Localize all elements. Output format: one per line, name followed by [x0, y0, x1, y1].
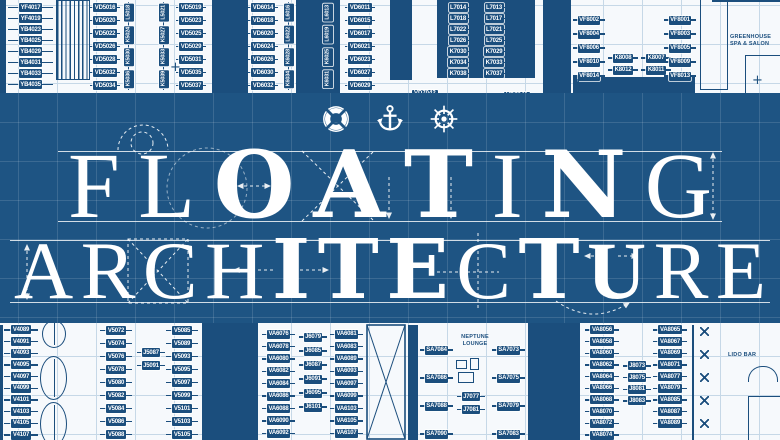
- cabin-label: VF8003: [664, 27, 696, 41]
- title-letter: R: [654, 230, 709, 312]
- cabin-label: J6087: [299, 358, 327, 372]
- cabin-label: K5030: [123, 46, 134, 68]
- cabin-column: VD6011VD6015VD6017VD6021VD6023VD6027VD60…: [345, 1, 375, 92]
- cabin-label: VA6090: [262, 415, 295, 427]
- cabin-label: YB4029: [8, 46, 53, 57]
- cabin-label: VD6020: [248, 27, 278, 40]
- cabin-label: VD5025: [176, 27, 206, 40]
- cabin-label: VF8013: [664, 69, 696, 83]
- room-wall: [712, 0, 780, 2]
- cabin-label: YB4023: [8, 24, 53, 35]
- cabin-label: L6019: [322, 24, 333, 46]
- cabin-column: V5072V5074V5076V5078V5080V5082V5084V5086…: [100, 324, 132, 440]
- cabin-label: K7030: [443, 46, 473, 57]
- room-outline: [700, 0, 728, 90]
- cabin-label: V5089: [166, 337, 198, 350]
- cabin-column: L6013L6019K6025K6031: [322, 2, 333, 90]
- cabin-label: VD5028: [90, 53, 120, 66]
- cabin-column: V5085V5089V5093V5095V5097V5099V5101V5103…: [166, 324, 198, 440]
- cabin-label: V5088: [100, 428, 132, 440]
- cabin-label: YB4025: [8, 35, 53, 46]
- cabin-column: J6079J6085J6087J6091J6095J6101: [299, 330, 327, 414]
- cabin-label: K5039: [158, 68, 169, 90]
- title-letter: L: [138, 140, 195, 233]
- cabin-label: SA7079: [492, 392, 525, 420]
- cabin-label: J5091: [137, 359, 165, 372]
- title-letter: A: [14, 230, 73, 312]
- lido-wall: [692, 325, 694, 440]
- cabin-label: VA8064: [585, 371, 619, 383]
- cabin-column: SA7073SA7075SA7079SA7083: [492, 336, 525, 440]
- registration-mark: +: [573, 76, 584, 86]
- cabin-label: VD5032: [90, 66, 120, 79]
- cabin-label: J8073: [623, 360, 651, 372]
- cabin-label: VA8068: [585, 394, 619, 406]
- title-letter: R: [81, 230, 136, 312]
- cabin-label: L7021: [479, 24, 509, 35]
- cabin-label: V4107: [4, 429, 38, 440]
- cabin-label: VA8079: [653, 382, 687, 394]
- cabin-label: V5085: [166, 324, 198, 337]
- cabin-label: VA8089: [653, 418, 687, 430]
- cabin-label: V5105: [166, 428, 198, 440]
- cabin-label: VD6029: [345, 79, 375, 92]
- title-letter: N: [541, 138, 626, 231]
- cabin-label: VD6015: [345, 14, 375, 27]
- room-outline: [748, 396, 780, 440]
- cabin-label: VD5029: [176, 40, 206, 53]
- cabin-label: VA6105: [330, 415, 363, 427]
- cabin-label: V5097: [166, 376, 198, 389]
- cabin-label: L7014: [443, 2, 473, 13]
- cabin-column: L7014L7018L7022L7026K7030K7034K7038: [443, 2, 473, 79]
- cabin-label: K6031: [322, 68, 333, 90]
- cabin-label: VA6081: [330, 328, 363, 340]
- cabin-column: VA6076VA6078VA6080VA6082VA6084VA6086VA60…: [262, 328, 295, 440]
- cabin-label: YB4031: [8, 57, 53, 68]
- cabin-label: V5103: [166, 415, 198, 428]
- table-icon: [700, 396, 709, 405]
- cabin-label: L7013: [479, 2, 509, 13]
- cabin-column: L6016L6022K6028K6034: [283, 2, 294, 90]
- cabin-label: VA8077: [653, 371, 687, 383]
- cabin-label: J7081: [457, 403, 485, 416]
- cabin-column: J8073J8075J8081J8083: [623, 360, 651, 407]
- title-letter: E: [716, 230, 766, 312]
- cabin-label: V4105: [4, 418, 38, 430]
- cabin-label: V5084: [100, 402, 132, 415]
- room-label-lido: LIDO BAR: [728, 352, 778, 359]
- cabin-label: VD6032: [248, 79, 278, 92]
- cabin-column: YF4017YF4019YB4023YB4025YB4029YB4031YB40…: [8, 2, 53, 90]
- title-letter: T: [518, 229, 579, 311]
- cabin-label: J8083: [623, 395, 651, 407]
- cabin-label: L7026: [443, 35, 473, 46]
- lounge-furniture: [470, 358, 479, 370]
- cabin-label: VA6088: [262, 402, 295, 414]
- cabin-label: V4089: [4, 324, 38, 336]
- room-label-neptune: NEPTUNE LOUNGE: [454, 334, 496, 347]
- cabin-label: VA6092: [262, 427, 295, 439]
- cabin-label: VA6078: [262, 340, 295, 352]
- cabin-label: VA8072: [585, 418, 619, 430]
- cabin-label: VA6083: [330, 340, 363, 352]
- cabin-label: K5027: [158, 24, 169, 46]
- title-letter: U: [587, 230, 646, 312]
- cabin-label: YF4019: [8, 13, 53, 24]
- cabin-label: VA8074: [585, 429, 619, 440]
- cabin-label: VA6080: [262, 353, 295, 365]
- cabin-label: VA8070: [585, 406, 619, 418]
- cabin-label: VA6099: [330, 390, 363, 402]
- cabin-label: YF4017: [8, 2, 53, 13]
- cabin-label: VA6082: [262, 365, 295, 377]
- bar-counter: [748, 366, 778, 382]
- balcony-hatch: [56, 0, 90, 80]
- cabin-label: VA6089: [330, 353, 363, 365]
- cabin-column: VF8001VF8003VF8005VF8009VF8013: [664, 13, 696, 83]
- title-letter: I: [272, 229, 310, 311]
- cabin-label: J5087: [137, 346, 165, 359]
- room-label-greenhouse: GREENHOUSE SPA & SALON: [730, 34, 780, 47]
- cabin-column: V4089V4091V4093V4095V4097V4099V4101V4103…: [4, 324, 38, 440]
- title-letter: O: [214, 138, 295, 231]
- cabin-label: K6034: [283, 68, 294, 90]
- cabin-label: L6013: [322, 2, 333, 24]
- cabin-label: VD6030: [248, 66, 278, 79]
- cabin-label: K8008: [608, 52, 638, 64]
- cabin-column: VD5016VD5020VD5022VD5026VD5028VD5032VD50…: [90, 1, 120, 92]
- title-letter: F: [68, 140, 120, 233]
- cabin-label: V4093: [4, 347, 38, 359]
- cabin-label: VA8066: [585, 382, 619, 394]
- cabin-label: V5095: [166, 363, 198, 376]
- stairwell-oval: [42, 320, 66, 348]
- table-icon: [700, 419, 709, 428]
- title-letter: T: [404, 138, 473, 231]
- cabin-label: VA6084: [262, 378, 295, 390]
- cabin-label: SA7073: [492, 336, 525, 364]
- cabin-label: VD5020: [90, 14, 120, 27]
- title-letter: H: [205, 230, 264, 312]
- title-letter: T: [318, 229, 379, 311]
- cabin-column: L5018K5024K5030K5036: [123, 2, 134, 90]
- cabin-label: V5078: [100, 363, 132, 376]
- cabin-label: L5018: [123, 2, 134, 24]
- cabin-label: L6016: [283, 2, 294, 24]
- cabin-label: VF8006: [573, 41, 605, 55]
- cabin-column: J7077J7081: [457, 390, 485, 416]
- plan-wall-fill: [390, 0, 412, 80]
- plan-wall-fill: [528, 323, 580, 440]
- cabin-label: L7018: [443, 13, 473, 24]
- cabin-label: VF8005: [664, 41, 696, 55]
- cabin-label: J6101: [299, 400, 327, 414]
- registration-mark: +: [752, 76, 763, 86]
- stairwell-oval: [40, 356, 67, 400]
- cabin-label: L7022: [443, 24, 473, 35]
- table-icon: [700, 373, 709, 382]
- cabin-column: L5021K5027K5033K5039: [158, 2, 169, 90]
- cabin-label: K7029: [479, 46, 509, 57]
- cabin-label: VA8085: [653, 394, 687, 406]
- cabin-label: V5076: [100, 350, 132, 363]
- cabin-label: VF8004: [573, 27, 605, 41]
- cabin-label: K5033: [158, 46, 169, 68]
- cabin-label: VD5016: [90, 1, 120, 14]
- cabin-label: K7034: [443, 57, 473, 68]
- cabin-label: J8075: [623, 372, 651, 384]
- cabin-label: K5024: [123, 24, 134, 46]
- cabin-column: J5087J5091: [137, 346, 165, 372]
- blueprint-poster: YF4017YF4019YB4023YB4025YB4029YB4031YB40…: [0, 0, 780, 440]
- cabin-label: V4091: [4, 336, 38, 348]
- title-letter: I: [492, 140, 523, 233]
- cabin-label: V5093: [166, 350, 198, 363]
- cabin-label: VD5022: [90, 27, 120, 40]
- plan-wall-fill: [0, 0, 6, 93]
- cabin-label: VA6103: [330, 402, 363, 414]
- cabin-label: J6091: [299, 372, 327, 386]
- table-icon: [700, 327, 709, 336]
- plan-wall-fill: [212, 0, 248, 93]
- cabin-label: V5074: [100, 337, 132, 350]
- cabin-label: V5072: [100, 324, 132, 337]
- stairwell-oval: [40, 402, 67, 440]
- cabin-label: K7033: [479, 57, 509, 68]
- cabin-label: J8081: [623, 383, 651, 395]
- cabin-column: VA8056VA8058VA8060VA8062VA8064VA8066VA80…: [585, 324, 619, 440]
- cabin-label: V5082: [100, 389, 132, 402]
- lounge-furniture: [456, 360, 467, 369]
- cabin-label: J7077: [457, 390, 485, 403]
- cabin-label: V4103: [4, 406, 38, 418]
- cabin-label: VD5023: [176, 14, 206, 27]
- cabin-label: VA6107: [330, 427, 363, 439]
- cabin-label: VA6086: [262, 390, 295, 402]
- title-line-1: FLOATING: [68, 138, 712, 233]
- cabin-label: VD6023: [345, 53, 375, 66]
- cabin-column: L7013L7017L7021L7025K7029K7033K7037: [479, 2, 509, 79]
- cabin-label: SA7090: [420, 420, 453, 440]
- cabin-label: L5021: [158, 2, 169, 24]
- cabin-label: VF8009: [664, 55, 696, 69]
- cabin-label: SA7083: [492, 420, 525, 440]
- cabin-label: VA8069: [653, 347, 687, 359]
- cabin-label: VA8062: [585, 359, 619, 371]
- cabin-label: VA8058: [585, 336, 619, 348]
- cabin-label: SA7088: [420, 392, 453, 420]
- cabin-column: VA6081VA6083VA6089VA6093VA6097VA6099VA61…: [330, 328, 363, 440]
- plan-wall-fill: [202, 323, 258, 440]
- cabin-label: VA8060: [585, 347, 619, 359]
- cabin-label: VF8002: [573, 13, 605, 27]
- cabin-label: VF8010: [573, 55, 605, 69]
- lounge-furniture: [458, 372, 474, 383]
- registration-mark: +: [170, 63, 181, 73]
- cabin-label: VD6011: [345, 1, 375, 14]
- cabin-label: VD5019: [176, 1, 206, 14]
- cabin-label: J6085: [299, 344, 327, 358]
- plan-wall-fill: [0, 325, 3, 440]
- cabin-label: VD6026: [248, 53, 278, 66]
- cabin-label: VD6014: [248, 1, 278, 14]
- cabin-column: SA7084SA7086SA7088SA7090: [420, 336, 453, 440]
- cabin-label: SA7086: [420, 364, 453, 392]
- title-letter: A: [313, 138, 385, 231]
- cabin-column: VA8065VA8067VA8069VA8071VA8077VA8079VA80…: [653, 324, 687, 429]
- cabin-label: J6079: [299, 330, 327, 344]
- cabin-label: K6028: [283, 46, 294, 68]
- cabin-label: VA8071: [653, 359, 687, 371]
- table-icon: [700, 350, 709, 359]
- cabin-label: VA6097: [330, 378, 363, 390]
- cabin-label: V4099: [4, 382, 38, 394]
- cabin-label: V4095: [4, 359, 38, 371]
- cabin-label: VA8067: [653, 336, 687, 348]
- cabin-label: VD6021: [345, 40, 375, 53]
- cabin-label: VA8087: [653, 406, 687, 418]
- cabin-label: YB4033: [8, 68, 53, 79]
- title-letter: C: [456, 230, 511, 312]
- title-letter: E: [386, 229, 449, 311]
- cabin-label: VD6024: [248, 40, 278, 53]
- cabin-label: V5080: [100, 376, 132, 389]
- nautical-icons: [0, 104, 780, 134]
- title-band: FLOATING ARCHITECTURE: [0, 93, 780, 323]
- plan-wall-fill: [543, 0, 571, 93]
- cabin-label: VD6017: [345, 27, 375, 40]
- cabin-label: VD5026: [90, 40, 120, 53]
- cabin-column: VD5019VD5023VD5025VD5029VD5031VD5035VD50…: [176, 1, 206, 92]
- cabin-label: YB4035: [8, 79, 53, 90]
- cabin-label: SA7075: [492, 364, 525, 392]
- plan-wall-fill: [408, 325, 418, 440]
- cabin-label: K7038: [443, 68, 473, 79]
- cabin-label: VA8056: [585, 324, 619, 336]
- cabin-label: L6022: [283, 24, 294, 46]
- cabin-label: VD5034: [90, 79, 120, 92]
- cabin-label: VA6076: [262, 328, 295, 340]
- cabin-label: VA6093: [330, 365, 363, 377]
- cabin-label: K8012: [608, 64, 638, 76]
- cabin-label: VD6018: [248, 14, 278, 27]
- cabin-label: V5086: [100, 415, 132, 428]
- cabin-label: VD5037: [176, 79, 206, 92]
- title-letter: C: [143, 230, 198, 312]
- cabin-label: L7017: [479, 13, 509, 24]
- cabin-column: K8008K8012: [608, 52, 638, 76]
- cabin-label: K7037: [479, 68, 509, 79]
- cabin-label: VA8065: [653, 324, 687, 336]
- cabin-label: V5099: [166, 389, 198, 402]
- stairwell-shaft: [366, 324, 406, 440]
- cabin-label: V4097: [4, 371, 38, 383]
- cabin-column: VD6014VD6018VD6020VD6024VD6026VD6030VD60…: [248, 1, 278, 92]
- title-line-2: ARCHITECTURE: [14, 229, 766, 312]
- plan-wall-fill: [296, 0, 340, 93]
- cabin-label: VF8001: [664, 13, 696, 27]
- cabin-label: K6025: [322, 46, 333, 68]
- cabin-label: SA7084: [420, 336, 453, 364]
- cabin-label: K5036: [123, 68, 134, 90]
- title-letter: G: [645, 140, 712, 233]
- cabin-label: V4101: [4, 394, 38, 406]
- cabin-label: L7025: [479, 35, 509, 46]
- cabin-label: VD6027: [345, 66, 375, 79]
- cabin-label: J6095: [299, 386, 327, 400]
- cabin-label: V5101: [166, 402, 198, 415]
